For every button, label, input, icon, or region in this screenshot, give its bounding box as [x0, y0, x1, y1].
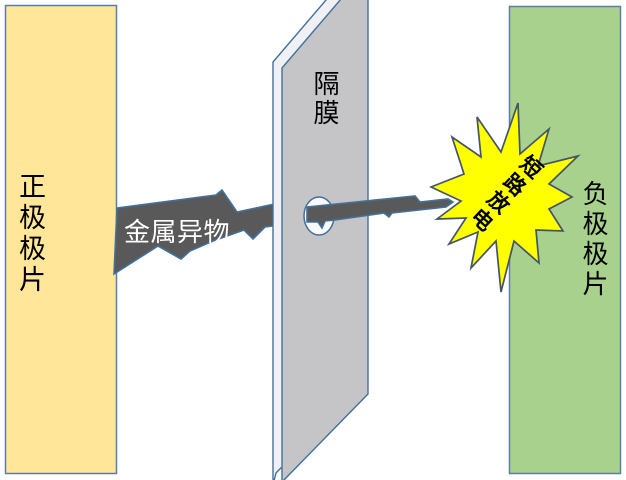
separator-label: 隔膜: [312, 70, 338, 128]
positive-electrode-label: 正极极片: [16, 172, 43, 296]
negative-electrode-label: 负极极片: [581, 180, 607, 300]
metal-foreign-object-label: 金属异物: [124, 212, 230, 249]
battery-short-circuit-diagram: 正极极片 隔膜 负极极片 金属异物 短路放电: [0, 0, 626, 480]
